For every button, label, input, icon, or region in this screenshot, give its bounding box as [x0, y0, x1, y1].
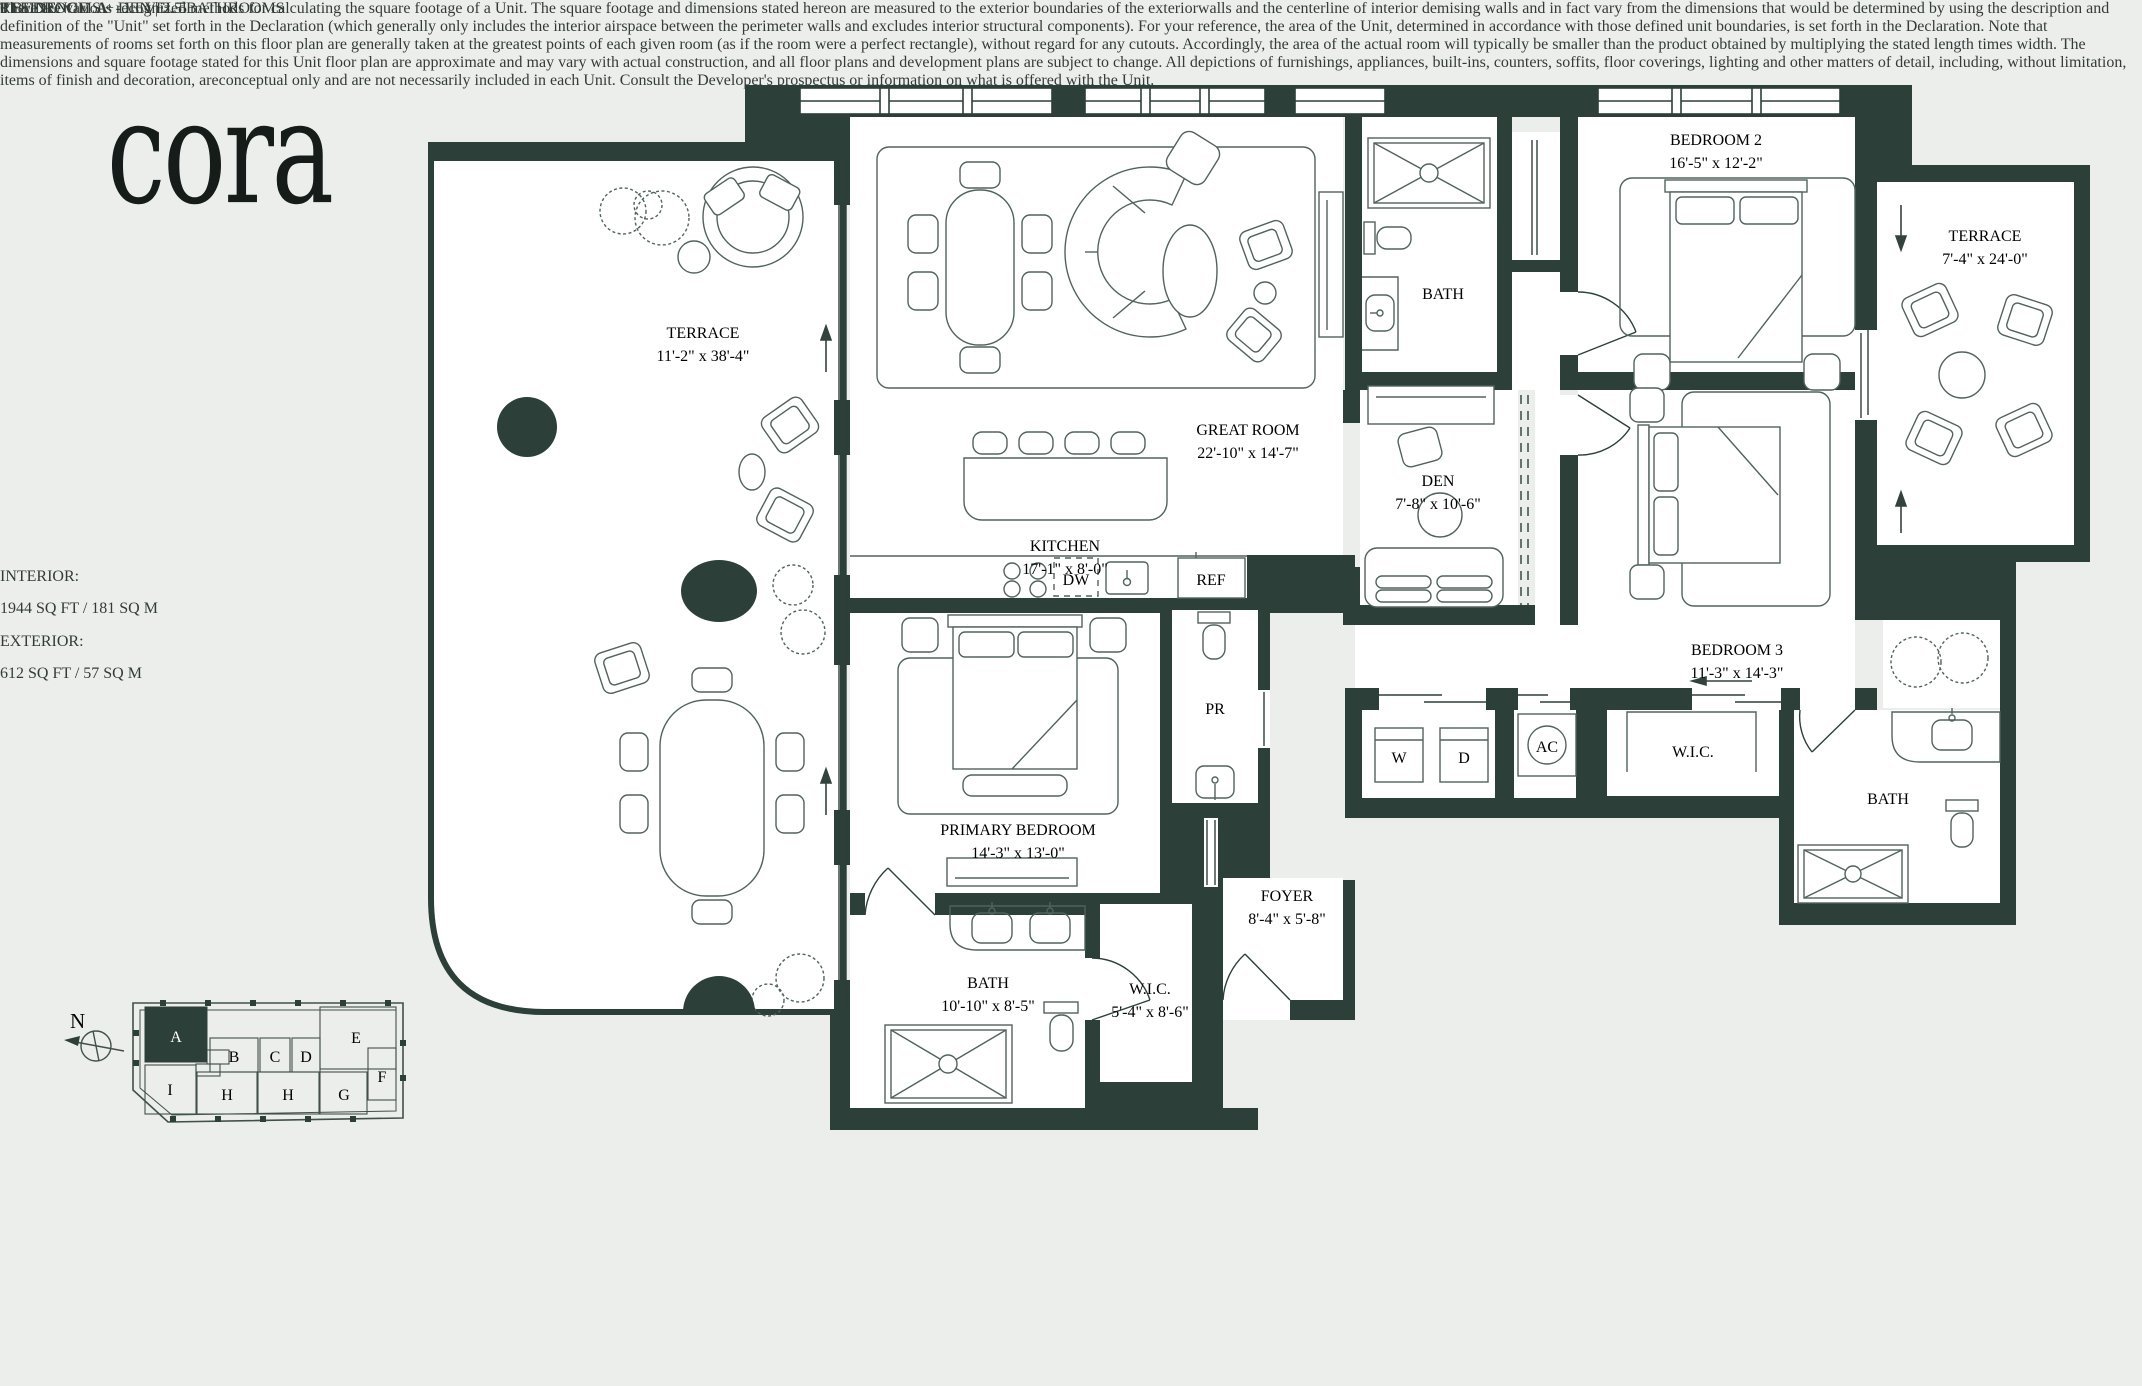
north-arrow-icon: [64, 1031, 124, 1061]
bath2-label: BATH: [1422, 286, 1464, 303]
kitchen-label: KITCHEN: [1030, 538, 1101, 555]
svg-text:8'-4" x 5'-8": 8'-4" x 5'-8": [1248, 911, 1325, 928]
primary-bath-label: BATH: [967, 975, 1009, 992]
svg-text:5'-4" x 8'-6": 5'-4" x 8'-6": [1111, 1004, 1188, 1021]
svg-text:G: G: [338, 1087, 350, 1104]
foyer-label: FOYER: [1261, 888, 1314, 905]
svg-text:H: H: [221, 1087, 233, 1104]
primary-bedroom-label: PRIMARY BEDROOM: [940, 822, 1095, 839]
svg-text:11'-3" x 14'-3": 11'-3" x 14'-3": [1691, 665, 1784, 682]
svg-text:7'-8" x 10'-6": 7'-8" x 10'-6": [1395, 496, 1480, 513]
svg-text:22'-10" x 14'-7": 22'-10" x 14'-7": [1197, 445, 1298, 462]
svg-text:F: F: [378, 1069, 387, 1086]
window-icon: [800, 88, 1840, 114]
svg-text:11'-2" x 38'-4": 11'-2" x 38'-4": [657, 348, 750, 365]
dryer-label: D: [1458, 750, 1470, 767]
great-room-label: GREAT ROOM: [1196, 422, 1299, 439]
svg-text:10'-10" x 8'-5": 10'-10" x 8'-5": [941, 998, 1034, 1015]
north-label: N: [70, 1009, 85, 1033]
svg-text:A: A: [170, 1029, 182, 1046]
svg-text:14'-3" x 13'-0": 14'-3" x 13'-0": [971, 845, 1064, 862]
wic3-label: W.I.C.: [1672, 744, 1714, 761]
svg-text:B: B: [229, 1049, 240, 1066]
bedroom3-label: BEDROOM 3: [1691, 642, 1783, 659]
svg-text:H: H: [282, 1087, 294, 1104]
dresser-icon: [947, 858, 1077, 886]
powder-room-label: PR: [1205, 701, 1225, 718]
refrigerator-label: REF: [1196, 572, 1225, 589]
round-sofa-icon: [702, 167, 803, 267]
svg-text:7'-4" x 24'-0": 7'-4" x 24'-0": [1942, 251, 2027, 268]
terrace-left-label: TERRACE: [667, 325, 740, 342]
den-label: DEN: [1422, 473, 1455, 490]
ottoman-icon: [678, 241, 710, 273]
svg-text:C: C: [270, 1049, 281, 1066]
console-table-icon: [1319, 192, 1343, 337]
floorplan-sheet: cora RESIDENCE A - LEVEL 5 3 BEDROOMS + …: [0, 0, 2142, 1386]
terrace-right-label: TERRACE: [1949, 228, 2022, 245]
keyplan: A B C D E F G H H I N: [64, 1000, 406, 1122]
bath3-label: BATH: [1867, 791, 1909, 808]
disclaimer-text: There are various recognized methods for…: [0, 0, 2142, 90]
sofa-icon: [1365, 548, 1503, 607]
svg-text:16'-5" x 12'-2": 16'-5" x 12'-2": [1669, 155, 1762, 172]
bedroom2-label: BEDROOM 2: [1670, 132, 1762, 149]
kitchen-island-icon: [964, 432, 1167, 520]
coffee-table-icon: [1163, 225, 1217, 317]
wic-primary-label: W.I.C.: [1129, 981, 1171, 998]
svg-text:E: E: [351, 1030, 361, 1047]
floorplan-drawing: TERRACE 11'-2" x 38'-4" GREAT ROOM 22'-1…: [0, 0, 2142, 1386]
svg-text:D: D: [300, 1049, 312, 1066]
dishwasher-label: DW: [1063, 572, 1091, 589]
terrace-left-outline: [431, 158, 843, 1012]
washer-label: W: [1391, 750, 1407, 767]
ac-label: AC: [1536, 739, 1558, 756]
svg-text:I: I: [167, 1082, 172, 1099]
